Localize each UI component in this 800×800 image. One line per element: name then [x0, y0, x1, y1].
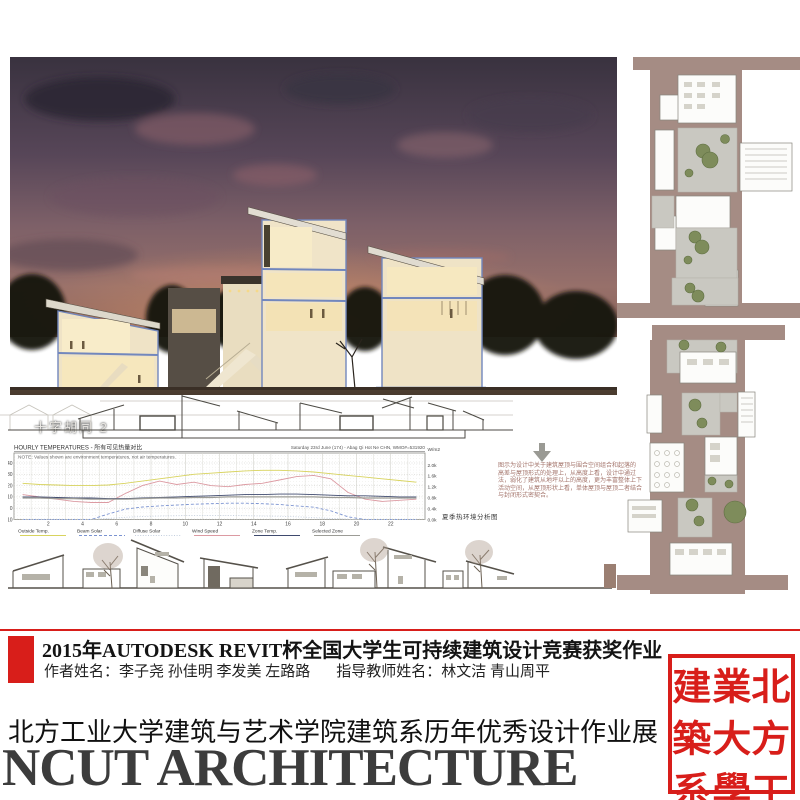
- seal-char: 北: [750, 657, 793, 710]
- plan-fragment-block: [604, 564, 616, 588]
- seal-char: 系: [670, 761, 713, 800]
- thermal-analysis-chart: 403020100102.0k1.6k1.2k0.8k0.4k0.0kW/m22…: [8, 443, 548, 540]
- chart-subtitle: Saturday 23rd June (174) - Abag Qi Hot N…: [291, 445, 426, 450]
- y-axis-tick: 10: [8, 517, 13, 523]
- poster-canvas: 十字胡同 2: [0, 0, 800, 800]
- summer-analysis-label: 夏季热环境分析图: [442, 511, 498, 521]
- authors: 作者姓名：李子尧 孙佳明 李发美 左路路: [44, 664, 310, 680]
- award-title: 2015年AUTODESK REVIT杯全国大学生可持续建筑设计竞赛获奖作业: [42, 634, 662, 663]
- x-axis-tick: 10: [182, 522, 188, 528]
- note-line: 法，弱化了建筑从地坪以上的高度，更为丰富整体上下: [498, 478, 650, 486]
- legend-label: Beam Solar: [77, 529, 102, 535]
- note-line: 图示为设计中关于建筑屋顶与围合空间组合和起落的: [498, 463, 650, 471]
- down-arrow-icon: [533, 443, 551, 463]
- x-axis-tick: 20: [354, 522, 360, 528]
- note-line: 与封闭形式密契合。: [498, 493, 650, 501]
- legend-label: Outside Temp.: [18, 529, 49, 535]
- department-seal: 建 業 北 築 大 方 系 學 工: [668, 654, 795, 794]
- x-axis-tick: 4: [81, 522, 84, 528]
- x-axis-tick: 18: [319, 522, 325, 528]
- roofline-elevation-svg: [0, 393, 545, 440]
- x-axis-tick: 6: [115, 522, 118, 528]
- seal-char: 學: [710, 761, 753, 800]
- site-plan-top-drawing: [617, 55, 800, 318]
- section-building-right: [368, 246, 486, 388]
- y-axis-tick: 40: [8, 461, 13, 467]
- section-building-center: [248, 207, 350, 390]
- legend-label: Zone Temp.: [252, 529, 277, 535]
- site-plan-top: [617, 55, 800, 318]
- legend-label: Wind Speed: [192, 529, 218, 535]
- x-axis-tick: 22: [388, 522, 394, 528]
- roofline-elevation-diagram: [0, 393, 545, 440]
- seal-char: 業: [710, 657, 753, 710]
- street-elevation-diagram: [0, 536, 620, 622]
- main-render-image: 十字胡同 2: [10, 57, 617, 395]
- seal-char: 方: [750, 709, 793, 762]
- solar-axis-tick: 0.4k: [428, 506, 438, 512]
- solar-axis-unit: W/m2: [428, 447, 441, 453]
- thermal-chart-svg: 403020100102.0k1.6k1.2k0.8k0.4k0.0kW/m22…: [8, 443, 548, 540]
- seal-char: 大: [710, 709, 753, 762]
- solar-axis-tick: 1.2k: [428, 485, 438, 491]
- solar-axis-tick: 2.0k: [428, 463, 438, 469]
- chart-note: NOTE: Values shown are environment tempe…: [18, 455, 176, 461]
- street-elevation-svg: [0, 536, 620, 622]
- ncut-architecture-title: NCUT ARCHITECTURE: [2, 738, 577, 798]
- legend-label: Selected Zone: [312, 529, 343, 535]
- x-axis-tick: 12: [217, 522, 223, 528]
- footer-divider-line: [0, 629, 800, 631]
- x-axis-tick: 14: [251, 522, 257, 528]
- solar-axis-tick: 1.6k: [428, 474, 438, 480]
- seal-char: 築: [670, 709, 713, 762]
- x-axis-tick: 16: [285, 522, 291, 528]
- seal-char: 建: [670, 657, 713, 710]
- x-axis-tick: 2: [47, 522, 50, 528]
- chart-title: HOURLY TEMPERATURES - 所有可见热量对比: [14, 444, 142, 452]
- legend-label: Diffuse Solar: [133, 529, 161, 535]
- seal-char: 工: [750, 761, 793, 800]
- y-axis-tick: 30: [8, 472, 13, 478]
- y-axis-tick: 0: [10, 506, 13, 512]
- x-axis-tick: 8: [150, 522, 153, 528]
- teachers: 指导教师姓名：林文洁 青山周平: [336, 664, 550, 680]
- dusk-section-render: [10, 57, 617, 395]
- credits-line: 作者姓名：李子尧 孙佳明 李发美 左路路指导教师姓名：林文洁 青山周平: [44, 660, 550, 681]
- solar-axis-tick: 0.0k: [428, 517, 438, 523]
- footer-red-block: [8, 636, 34, 683]
- y-axis-tick: 10: [8, 495, 13, 501]
- design-description-note: 图示为设计中关于建筑屋顶与围合空间组合和起落的 高差与屋顶形式的处理上，从高度上…: [498, 463, 650, 501]
- solar-axis-tick: 0.8k: [428, 496, 438, 502]
- y-axis-tick: 20: [8, 483, 13, 489]
